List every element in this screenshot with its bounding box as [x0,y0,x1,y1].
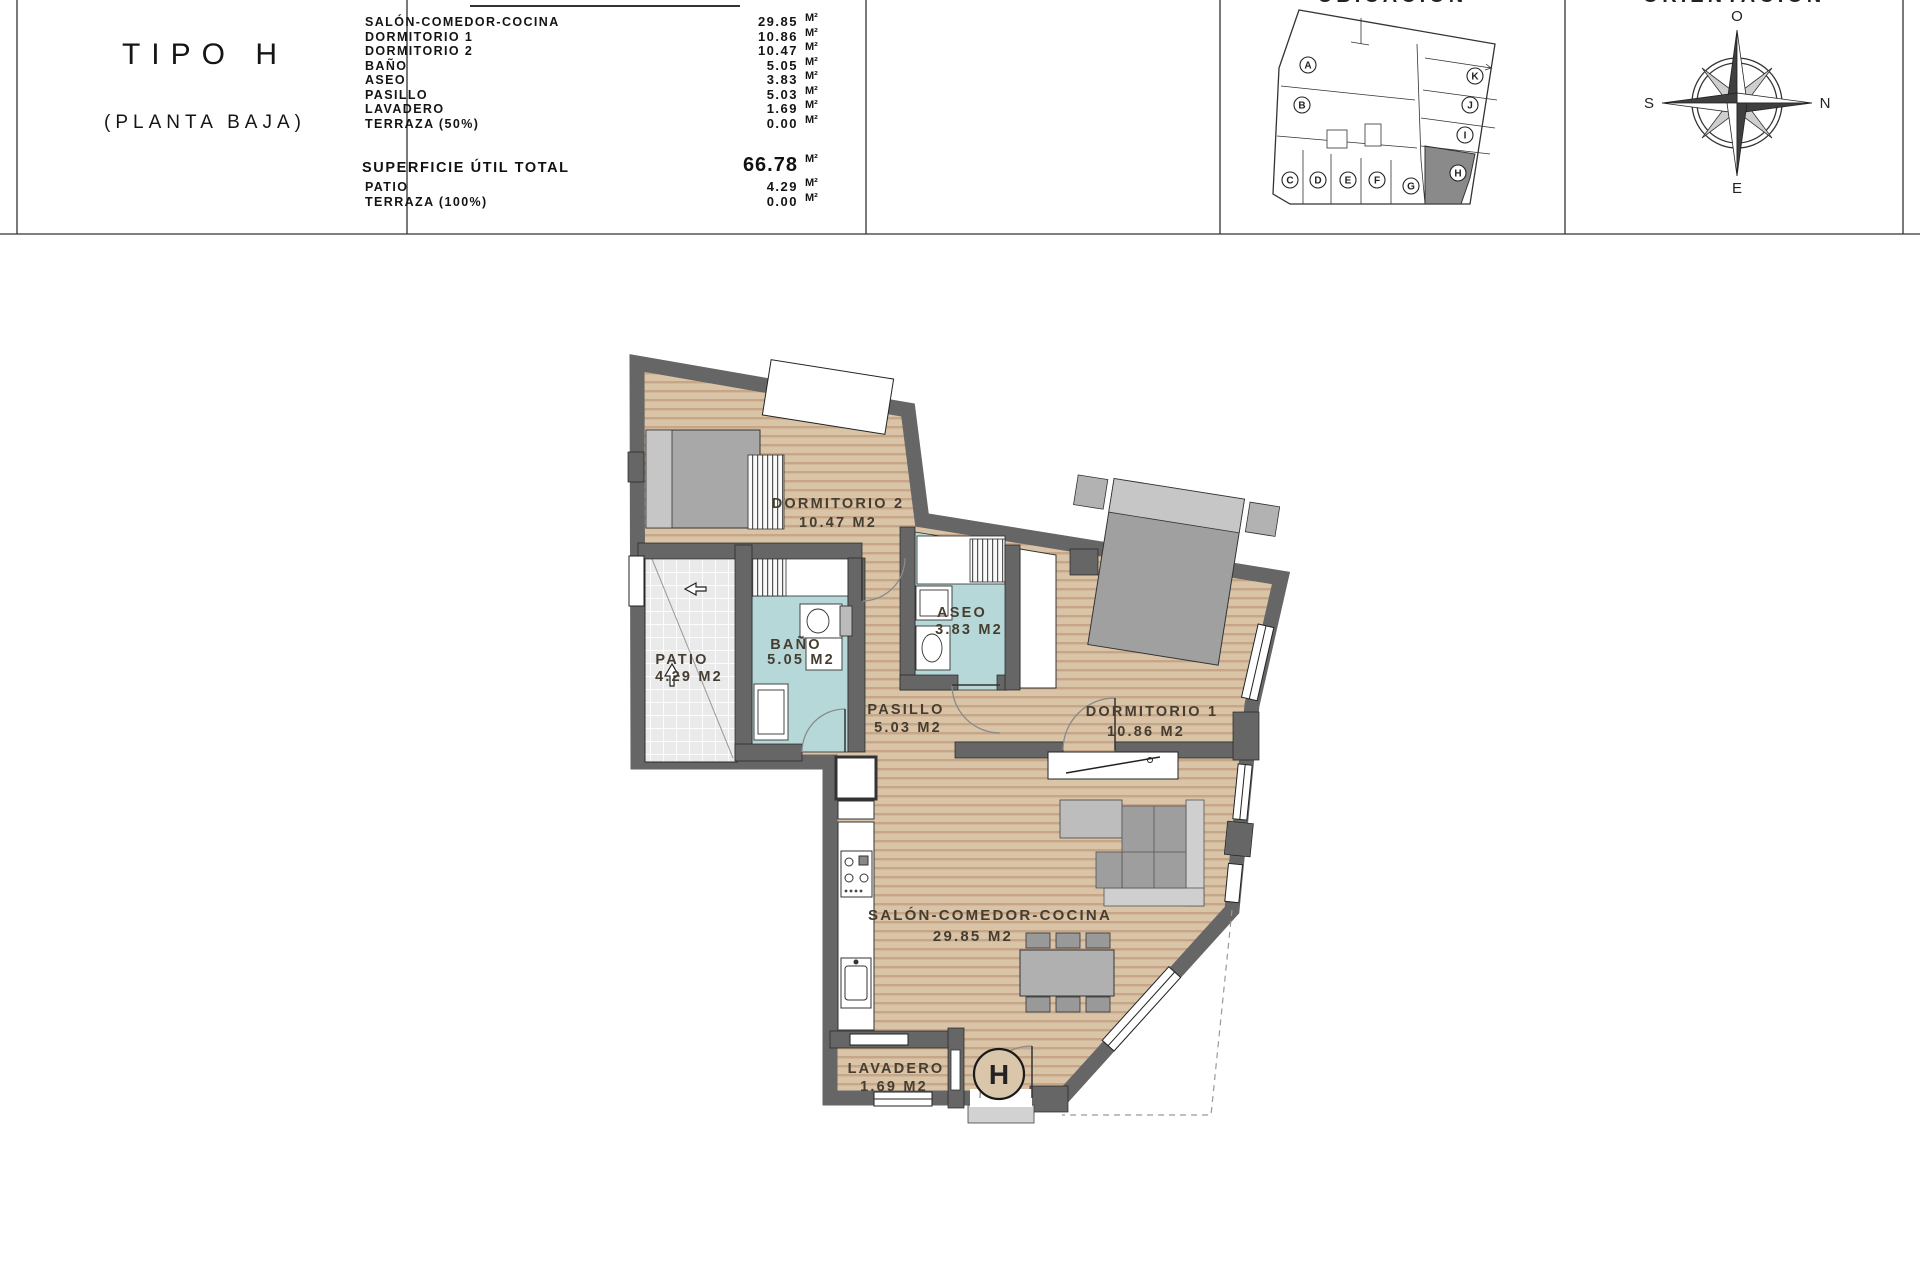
label-dormitorio1-area: 10.86 M2 [1107,724,1185,740]
table-row-label: LAVADERO [365,102,665,116]
unit-c: C [1286,176,1293,187]
table-row-unit: M² [805,56,818,68]
wardrobe-dormitorio2 [748,455,784,529]
wardrobe [970,539,1005,582]
sheet-title: TIPO H [70,38,340,72]
sheet-subtitle: (PLANTA BAJA) [45,112,365,134]
location-map: A B C D E F G H I J K [1273,10,1497,204]
table-row-value: 10.47 [672,43,798,58]
table-row-value: 1.69 [672,101,798,116]
label-patio-area: 4.29 M2 [655,669,723,685]
compass-north: N [1820,95,1831,112]
dining-set [1020,933,1114,1012]
table-row-unit: M² [805,12,818,24]
ubicacion-header: UBICACIÓN [1220,0,1565,8]
kitchen-units [836,757,876,1030]
table-row-unit: M² [805,192,818,204]
unit-a: A [1304,61,1311,72]
label-dormitorio2-area: 10.47 M2 [799,515,877,531]
table-row-unit: M² [805,41,818,53]
table-total-unit: M² [805,153,818,165]
bed-dormitorio2 [646,430,760,528]
table-row-unit: M² [805,27,818,39]
label-bano-area: 5.05 M2 [767,652,835,668]
label-bano: BAÑO [770,635,822,653]
table-row-label: ASEO [365,73,665,87]
side-table [1060,800,1122,838]
unit-h: H [1454,169,1461,180]
label-salon: SALÓN-COMEDOR-COCINA [868,906,1112,924]
table-total-label: SUPERFICIE ÚTIL TOTAL [362,160,570,176]
closet [1020,549,1056,688]
label-pasillo-area: 5.03 M2 [874,720,942,736]
table-row-label: BAÑO [365,59,665,73]
table-row-value: 29.85 [672,14,798,29]
table-row-value: 3.83 [672,72,798,87]
floor-plan-svg: H DORMITORIO 2 10.47 M2 BAÑO 5.05 M2 ASE… [0,0,1920,1280]
label-salon-area: 29.85 M2 [933,928,1013,945]
table-row-value: 0.00 [672,194,798,209]
table-total-value: 66.78 [640,154,798,177]
unit-g: G [1407,182,1415,193]
table-row-unit: M² [805,70,818,82]
table-row-value: 5.03 [672,87,798,102]
unit-i: I [1464,131,1467,142]
table-row-label: SALÓN-COMEDOR-COCINA [365,15,665,29]
door-leaf-lavadero [951,1050,960,1090]
entrance-marker-letter: H [989,1059,1009,1090]
unit-k: K [1471,72,1479,83]
table-row-unit: M² [805,177,818,189]
label-lavadero-area: 1.69 M2 [860,1079,928,1095]
label-pasillo: PASILLO [867,702,944,718]
apartment: H DORMITORIO 2 10.47 M2 BAÑO 5.05 M2 ASE… [628,360,1281,1123]
label-aseo-area: 3.83 M2 [935,622,1003,638]
unit-b: B [1298,101,1305,112]
label-patio: PATIO [655,652,708,668]
unit-e: E [1345,176,1352,187]
wardrobe [752,558,786,596]
stove-icon [841,851,872,897]
tv-console [1048,752,1178,779]
fridge [836,757,876,799]
table-row-label: TERRAZA (100%) [365,195,665,209]
table-row-label: DORMITORIO 1 [365,30,665,44]
orientacion-header: ORIENTACIÓN [1565,0,1903,8]
table-row-unit: M² [805,114,818,126]
compass-east: E [1732,180,1742,197]
table-row-value: 4.29 [672,179,798,194]
label-aseo: ASEO [937,605,987,621]
table-row-label: TERRAZA (50%) [365,117,665,131]
compass-south: S [1644,95,1654,112]
unit-f: F [1374,176,1380,187]
table-row-label: DORMITORIO 2 [365,44,665,58]
sink-icon [841,958,871,1008]
plan-sheet: H DORMITORIO 2 10.47 M2 BAÑO 5.05 M2 ASE… [0,0,1920,1280]
compass-rose: O N S E [1644,8,1830,197]
label-dormitorio1: DORMITORIO 1 [1086,704,1218,720]
entrance-marker: H [974,1049,1024,1099]
unit-j: J [1467,101,1473,112]
table-row-label: PASILLO [365,88,665,102]
table-row-value: 10.86 [672,29,798,44]
table-row-unit: M² [805,85,818,97]
label-lavadero: LAVADERO [848,1061,945,1077]
table-row-label: PATIO [365,180,665,194]
table-row-unit: M² [805,99,818,111]
compass-west: O [1731,8,1743,25]
label-dormitorio2: DORMITORIO 2 [772,496,904,512]
unit-d: D [1314,176,1321,187]
table-row-value: 0.00 [672,116,798,131]
table-row-value: 5.05 [672,58,798,73]
